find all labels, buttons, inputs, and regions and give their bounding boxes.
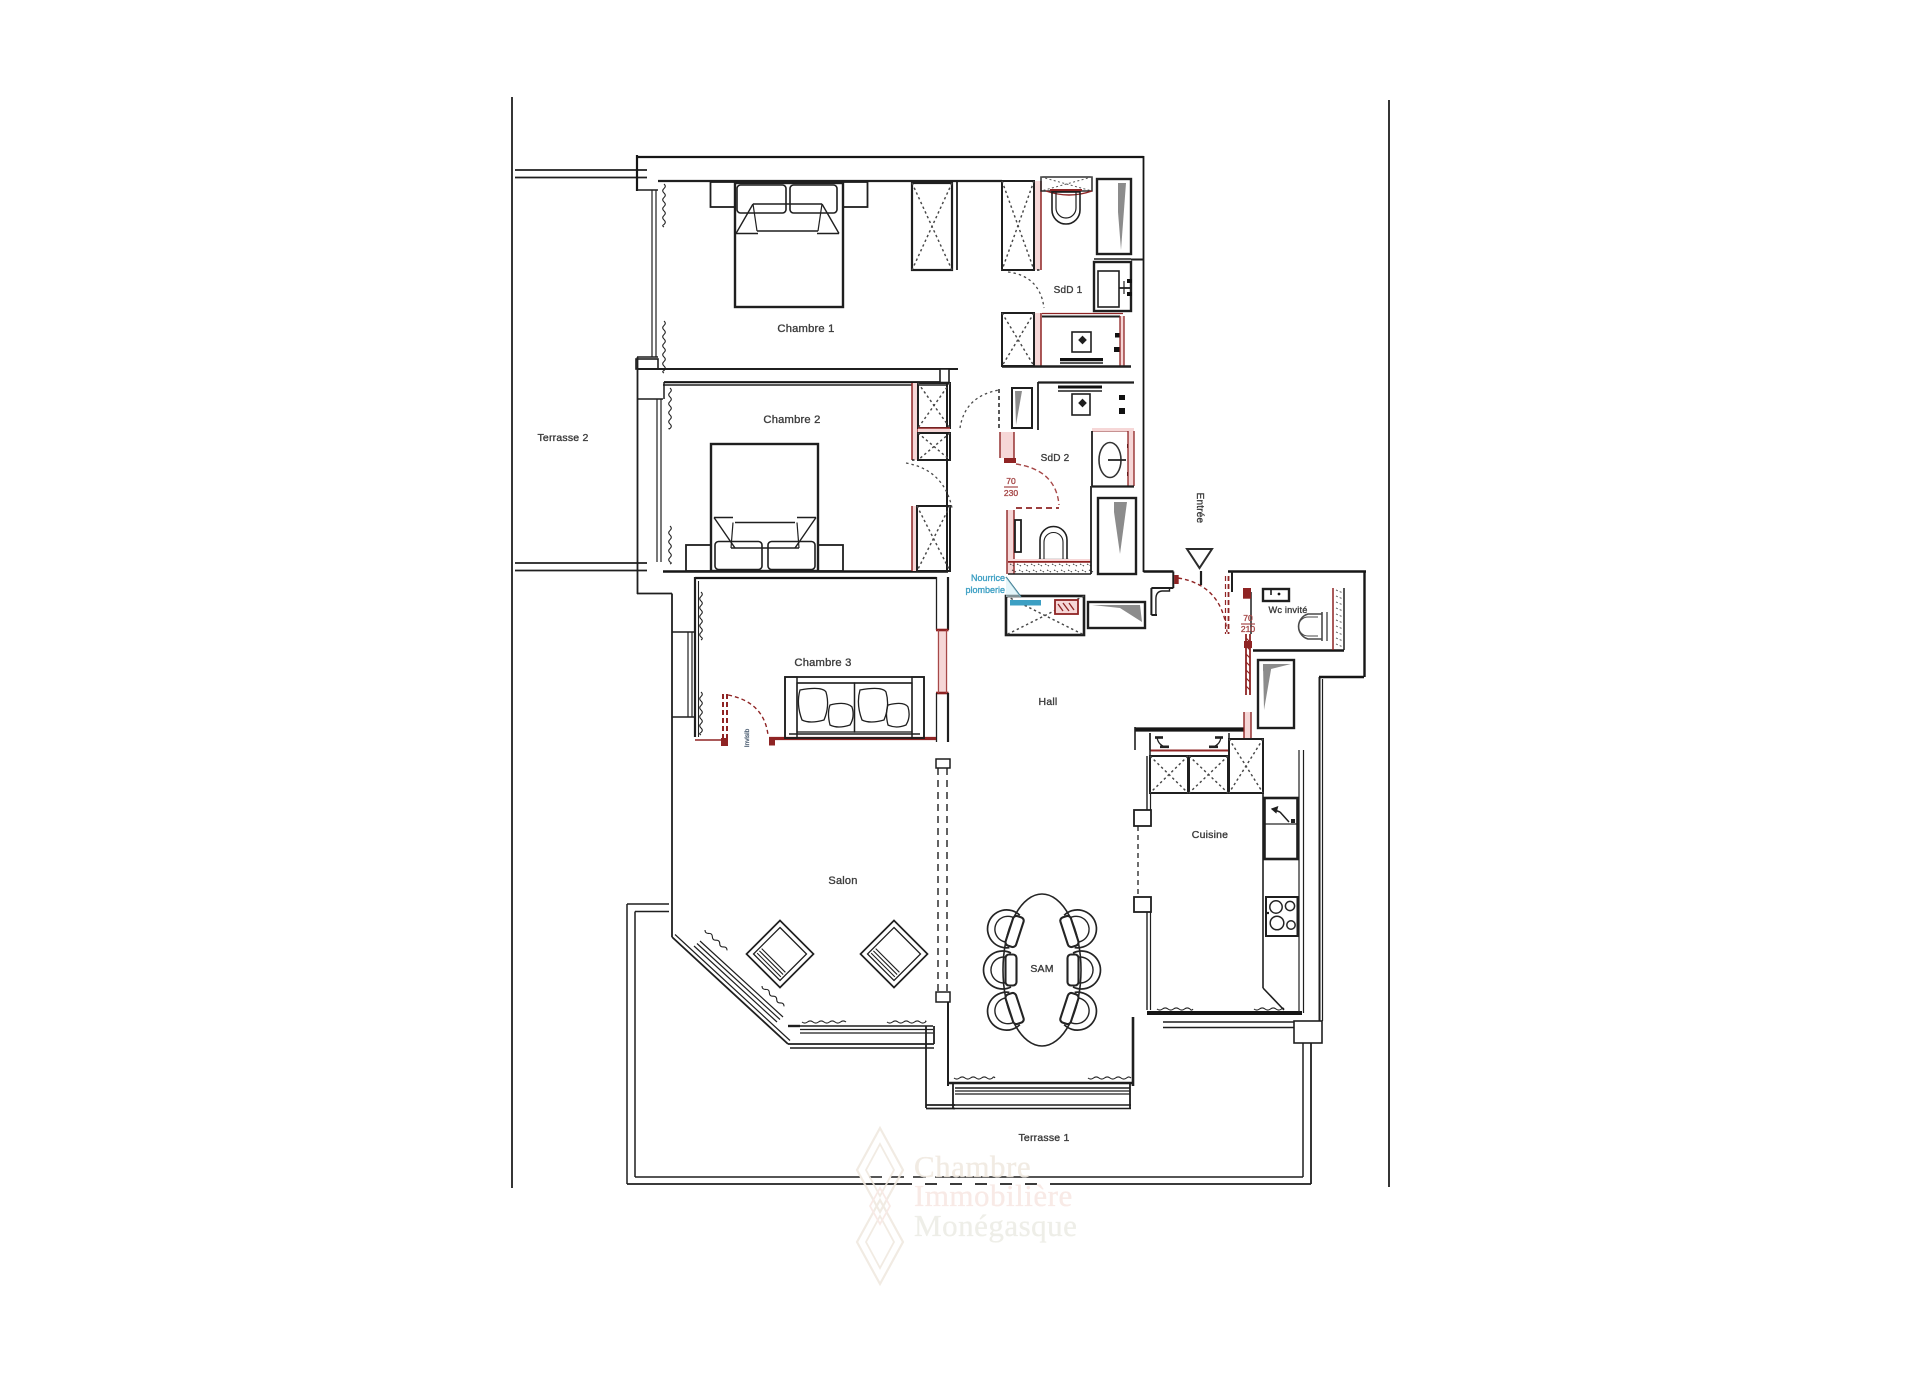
svg-text:210: 210	[1241, 624, 1255, 634]
svg-text:Salon: Salon	[828, 875, 857, 887]
svg-text:230: 230	[1004, 488, 1018, 498]
svg-text:Chambre 1: Chambre 1	[777, 323, 834, 335]
svg-text:SAM: SAM	[1030, 963, 1053, 975]
svg-text:Cuisine: Cuisine	[1192, 829, 1228, 841]
svg-text:Chambre 2: Chambre 2	[763, 414, 820, 426]
svg-text:Chambre 3: Chambre 3	[794, 657, 851, 669]
svg-text:plomberie: plomberie	[965, 585, 1005, 595]
svg-text:70: 70	[1243, 613, 1253, 623]
svg-text:Terrasse 2: Terrasse 2	[537, 432, 588, 444]
svg-text:SdD 1: SdD 1	[1054, 285, 1083, 296]
svg-text:Hall: Hall	[1039, 696, 1058, 708]
svg-text:Nourrice: Nourrice	[971, 573, 1005, 583]
svg-text:Invisib: Invisib	[744, 728, 751, 747]
svg-text:Wc invité: Wc invité	[1268, 605, 1307, 615]
svg-text:Terrasse 1: Terrasse 1	[1018, 1132, 1069, 1144]
svg-text:Monégasque: Monégasque	[914, 1208, 1077, 1243]
svg-text:SdD 2: SdD 2	[1041, 453, 1070, 464]
svg-text:Entrée: Entrée	[1194, 493, 1205, 524]
svg-text:70: 70	[1006, 476, 1016, 486]
